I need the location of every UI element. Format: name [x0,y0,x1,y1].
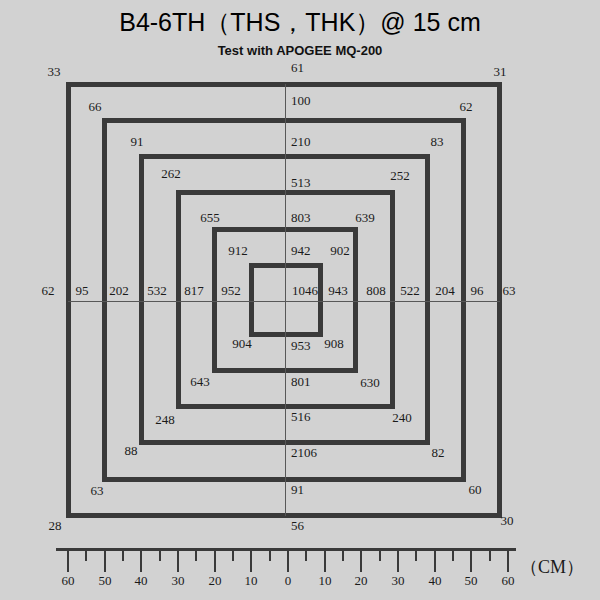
value-center: 1046 [292,283,318,299]
ruler-tick-major [287,550,289,572]
value-60cm-top-right: 31 [494,64,507,80]
ruler-tick-major [470,550,472,572]
ruler-label: 60 [62,573,75,589]
value-60cm-bottom-right: 30 [501,513,514,529]
ruler-tick-minor [342,550,344,561]
value-40cm-bottom: 2106 [291,445,317,461]
value-20cm-right: 808 [366,283,386,299]
value-40cm-top-left: 91 [131,134,144,150]
value-10cm-left: 952 [221,283,241,299]
ruler-label: 40 [429,573,442,589]
value-20cm-bottom: 801 [291,374,311,390]
ruler-baseline [56,548,516,551]
value-50cm-left: 95 [76,283,89,299]
value-30cm-bottom: 516 [291,409,311,425]
value-40cm-top: 210 [291,134,311,150]
ruler-tick-major [507,550,509,572]
ruler-tick-major [434,550,436,572]
value-10cm-top: 942 [291,243,311,259]
value-60cm-top-left: 33 [48,64,61,80]
value-20cm-top-left: 655 [200,210,220,226]
ruler-label: 20 [355,573,368,589]
value-40cm-top-right: 83 [431,134,444,150]
value-40cm-right: 204 [435,283,455,299]
value-20cm-top-right: 639 [355,210,375,226]
value-40cm-left: 202 [109,283,129,299]
value-30cm-left: 532 [147,283,167,299]
value-60cm-left: 62 [42,283,55,299]
ruler-tick-major [397,550,399,572]
chart-title: B4-6TH（THS，THK）@ 15 cm [0,6,600,39]
ruler-label: 10 [319,573,332,589]
value-50cm-bottom-right: 60 [469,482,482,498]
ruler-tick-minor [379,550,381,561]
ruler-tick-major [324,550,326,572]
ruler-tick-major [104,550,106,572]
ruler-tick-minor [122,550,124,561]
ruler-label: 20 [209,573,222,589]
value-10cm-bottom-right: 908 [324,336,344,352]
ruler-label: 40 [135,573,148,589]
ruler-tick-major [360,550,362,572]
value-50cm-top-left: 66 [89,99,102,115]
value-50cm-bottom: 91 [291,482,304,498]
ruler-tick-major [214,550,216,572]
horizontal-axis-line [68,301,500,302]
ruler-label: 0 [285,573,292,589]
vertical-axis-line [285,84,286,516]
ruler-label: 10 [245,573,258,589]
value-10cm-top-left: 912 [228,243,248,259]
ruler-tick-minor [305,550,307,561]
ruler-tick-minor [159,550,161,561]
value-50cm-top: 100 [291,93,311,109]
value-50cm-right: 96 [471,283,484,299]
value-30cm-top-right: 252 [390,168,410,184]
value-40cm-bottom-left: 88 [125,443,138,459]
ruler-label: 50 [99,573,112,589]
chart-subtitle: Test with APOGEE MQ-200 [0,43,600,58]
ruler-tick-major [67,550,69,572]
ruler-tick-minor [269,550,271,561]
value-10cm-bottom-left: 904 [232,336,252,352]
ruler-tick-minor [232,550,234,561]
value-60cm-top: 61 [291,60,304,76]
value-30cm-top-left: 262 [161,166,181,182]
par-distribution-chart: B4-6TH（THS，THK）@ 15 cm Test with APOGEE … [0,0,600,600]
value-60cm-bottom-left: 28 [49,518,62,534]
value-50cm-bottom-left: 63 [91,483,104,499]
value-20cm-left: 817 [184,283,204,299]
ruler-tick-major [140,550,142,572]
value-40cm-bottom-right: 82 [432,445,445,461]
ruler-tick-minor [452,550,454,561]
value-20cm-bottom-left: 643 [190,374,210,390]
ruler-label: 30 [392,573,405,589]
ruler-unit-label: （CM） [520,555,584,579]
value-10cm-top-right: 902 [330,243,350,259]
value-60cm-bottom: 56 [291,518,304,534]
ruler-tick-major [250,550,252,572]
ruler-tick-minor [85,550,87,561]
value-30cm-right: 522 [400,283,420,299]
value-60cm-right: 63 [503,283,516,299]
value-30cm-bottom-left: 248 [155,412,175,428]
ruler-label: 50 [465,573,478,589]
ruler-label: 30 [172,573,185,589]
ruler-label: 60 [502,573,515,589]
ring-square-10cm [249,263,323,337]
value-10cm-bottom: 953 [291,338,311,354]
value-30cm-top: 513 [291,175,311,191]
ruler-tick-minor [195,550,197,561]
value-50cm-top-right: 62 [460,99,473,115]
value-10cm-right: 943 [328,283,348,299]
value-30cm-bottom-right: 240 [392,410,412,426]
ruler-tick-minor [415,550,417,561]
ruler-tick-major [177,550,179,572]
value-20cm-top: 803 [291,210,311,226]
ruler-tick-minor [489,550,491,561]
value-20cm-bottom-right: 630 [360,375,380,391]
